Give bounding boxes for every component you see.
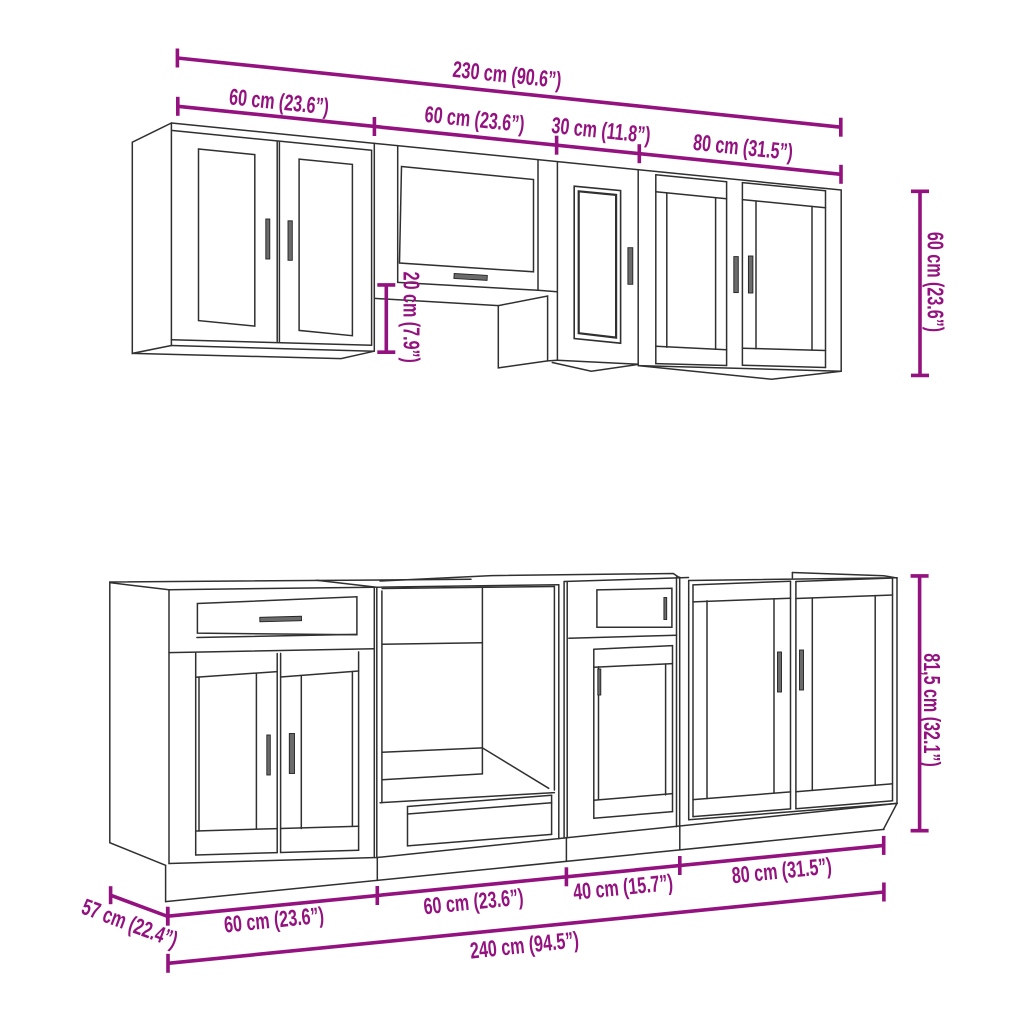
svg-text:60 cm (23.6”): 60 cm (23.6”): [922, 232, 947, 332]
svg-text:30 cm (11.8”): 30 cm (11.8”): [550, 113, 651, 149]
svg-text:20 cm (7.9”): 20 cm (7.9”): [398, 272, 423, 363]
svg-text:81,5 cm (32.1”): 81,5 cm (32.1”): [918, 653, 943, 767]
svg-text:60 cm (23.6”): 60 cm (23.6”): [228, 85, 330, 121]
